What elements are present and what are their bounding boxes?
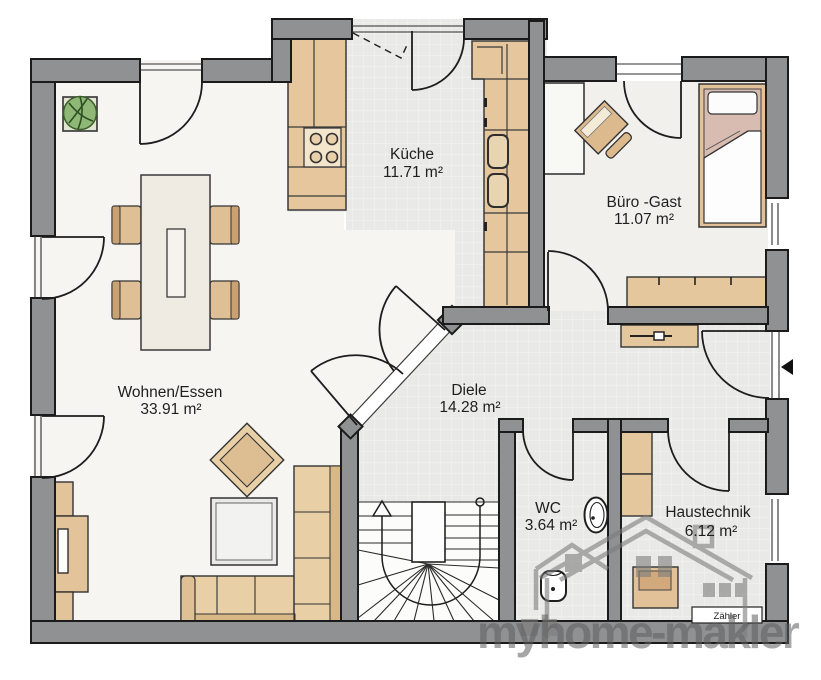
svg-text:Küche: Küche	[390, 146, 434, 163]
svg-text:3.64 m²: 3.64 m²	[525, 517, 578, 534]
svg-text:11.71 m²: 11.71 m²	[383, 164, 443, 181]
svg-text:myhome-makler: myhome-makler	[477, 606, 800, 658]
svg-text:14.28 m²: 14.28 m²	[439, 399, 500, 416]
svg-text:Wohnen/Essen: Wohnen/Essen	[118, 384, 223, 401]
svg-text:Büro -Gast: Büro -Gast	[607, 194, 683, 211]
svg-text:Haustechnik: Haustechnik	[665, 504, 751, 521]
svg-text:WC: WC	[535, 500, 561, 517]
svg-text:33.91 m²: 33.91 m²	[140, 401, 201, 418]
svg-text:Diele: Diele	[451, 382, 486, 399]
svg-text:11.07 m²: 11.07 m²	[614, 211, 674, 228]
svg-text:6.12 m²: 6.12 m²	[685, 523, 738, 540]
